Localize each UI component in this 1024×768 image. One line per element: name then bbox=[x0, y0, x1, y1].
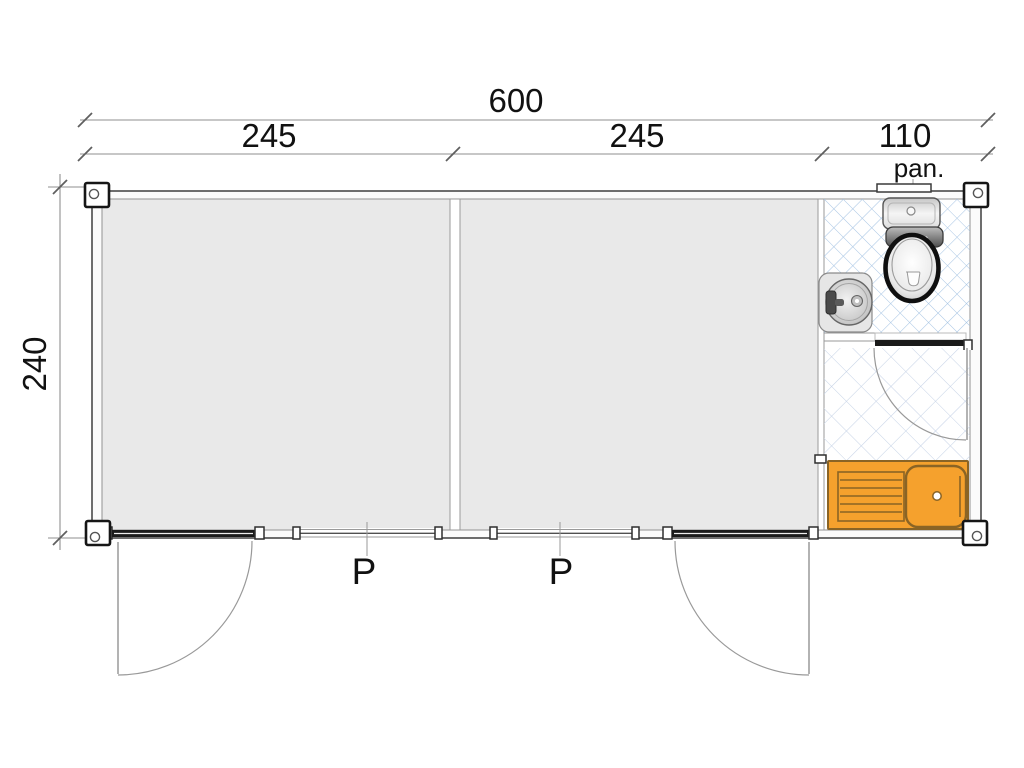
corner-casting-top-left bbox=[85, 183, 109, 207]
door-swing-arc bbox=[118, 541, 252, 675]
window-left: P bbox=[293, 522, 442, 592]
bathroom-wall bbox=[824, 333, 875, 341]
dimension-total-width: 600 bbox=[78, 82, 995, 127]
corner-casting-bottom-left bbox=[86, 521, 110, 545]
pan-window bbox=[877, 184, 931, 192]
entrance-door-right bbox=[663, 527, 818, 675]
vestibule-tile-floor bbox=[824, 348, 970, 460]
casting-hole bbox=[973, 188, 982, 197]
window-jamb bbox=[490, 527, 497, 539]
casting-hole bbox=[972, 531, 981, 540]
pan-window-label: pan. bbox=[894, 153, 945, 183]
sink-drain bbox=[933, 492, 941, 500]
dim-room2-label: 245 bbox=[609, 117, 664, 154]
bath-partition-wall bbox=[818, 199, 824, 530]
door-jamb bbox=[663, 527, 672, 539]
dim-bath-label: 110 bbox=[879, 117, 932, 154]
partition-wall bbox=[450, 199, 460, 530]
window-jamb bbox=[293, 527, 300, 539]
pan-window-callout: pan. bbox=[894, 153, 945, 187]
window-label-left: P bbox=[352, 551, 377, 592]
vestibule-wall-jamb bbox=[815, 455, 826, 463]
floor-plan-canvas: 600 245 245 110 240 pan. bbox=[0, 0, 1024, 768]
casting-hole bbox=[90, 532, 99, 541]
corner-casting-bottom-right bbox=[963, 521, 987, 545]
window-right: P bbox=[490, 522, 639, 592]
toilet bbox=[883, 198, 943, 301]
faucet bbox=[826, 291, 836, 314]
faucet-spout bbox=[835, 299, 844, 306]
door-swing-arc bbox=[675, 541, 809, 675]
door-jamb bbox=[809, 527, 818, 539]
dimension-segments: 245 245 110 bbox=[78, 117, 995, 161]
dim-total-label: 600 bbox=[488, 82, 543, 119]
window-jamb bbox=[632, 527, 639, 539]
dim-room1-label: 245 bbox=[241, 117, 296, 154]
washbasin-drain-dot bbox=[855, 299, 859, 303]
vestibule bbox=[815, 348, 970, 463]
entrance-door-left bbox=[103, 527, 264, 675]
bathroom-door-panel bbox=[875, 340, 966, 346]
washbasin bbox=[819, 273, 872, 332]
toilet-flush-button bbox=[907, 207, 915, 215]
kitchen-sink-unit bbox=[828, 461, 968, 529]
floor-plan-page: 600 245 245 110 240 pan. bbox=[0, 0, 1024, 768]
bathroom-door-sill bbox=[875, 333, 966, 340]
dimension-height: 240 bbox=[16, 174, 86, 550]
window-label-right: P bbox=[549, 551, 574, 592]
window-jamb bbox=[435, 527, 442, 539]
corner-casting-top-right bbox=[964, 183, 988, 207]
door-jamb bbox=[255, 527, 264, 539]
casting-hole bbox=[89, 189, 98, 198]
dim-height-label: 240 bbox=[16, 336, 53, 391]
